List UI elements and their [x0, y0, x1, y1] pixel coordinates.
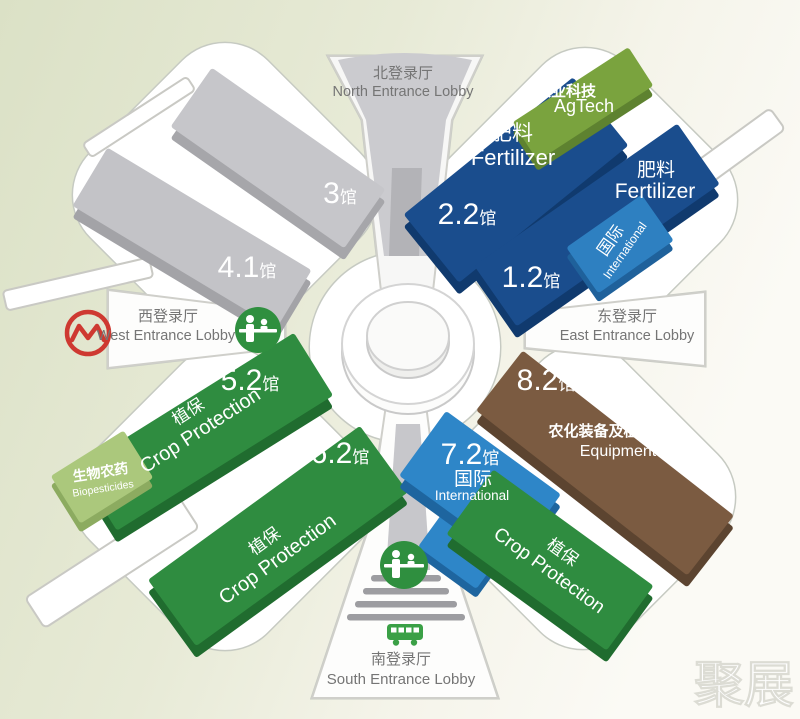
hall-2-2-category-zh: 肥料: [491, 122, 533, 145]
east-entrance-en: East Entrance Lobby: [560, 328, 695, 344]
hall-7-2-category-en: International: [435, 488, 509, 503]
west-entrance-zh: 西登录厅: [138, 308, 198, 325]
east-entrance-zh: 东登录厅: [597, 308, 657, 325]
hall-4-1-suffix: 馆: [259, 262, 276, 281]
hall-2-2-suffix: 馆: [479, 209, 496, 228]
hall-8-2-category-zh: 农化装备及植保器械: [547, 422, 683, 440]
hall-1-2-category-en: Fertilizer: [615, 180, 696, 203]
hall-2-2-category-en: Fertilizer: [471, 145, 555, 170]
north-entrance-zh: 北登录厅: [373, 65, 433, 82]
north-entrance-en: North Entrance Lobby: [332, 84, 474, 100]
hall-2-2-num: 2.2: [438, 198, 480, 231]
hall-1-2-suffix: 馆: [543, 272, 560, 291]
hall-4-1-num: 4.1: [218, 251, 260, 284]
hall-8-2-category-en: Equipment: [580, 443, 657, 460]
hall-8-2-num: 8.2: [517, 364, 559, 397]
hall-7-2-num: 7.2: [441, 438, 483, 471]
watermark: 聚展: [693, 657, 794, 713]
hall-1-2-num: 1.2: [502, 261, 544, 294]
registration-icon-south: [380, 541, 428, 589]
south-entrance-en: South Entrance Lobby: [327, 671, 476, 688]
registration-icon-west: [235, 307, 281, 353]
hall-5-2-suffix: 馆: [262, 375, 279, 394]
hall-6-2-suffix: 馆: [352, 448, 369, 467]
hall-6-2-num: 6.2: [311, 437, 353, 470]
exhibition-floor-map: 北登录厅 North Entrance Lobby 西登录厅 West Entr…: [0, 0, 800, 719]
hall-3-num: 3: [323, 177, 340, 210]
central-ring: [342, 284, 474, 414]
hall-7-2-suffix: 馆: [482, 449, 499, 468]
floor-map-svg: 北登录厅 North Entrance Lobby 西登录厅 West Entr…: [0, 0, 800, 719]
west-entrance-en: West Entrance Lobby: [97, 328, 236, 344]
south-entrance-zh: 南登录厅: [371, 651, 431, 668]
hall-7-2-category-zh: 国际: [454, 468, 492, 490]
hall-1-2-category-zh: 肥料: [637, 159, 675, 181]
hall-3-suffix: 馆: [340, 188, 357, 207]
agtech-zone-en: AgTech: [554, 96, 614, 116]
hall-8-2-suffix: 馆: [558, 375, 575, 394]
